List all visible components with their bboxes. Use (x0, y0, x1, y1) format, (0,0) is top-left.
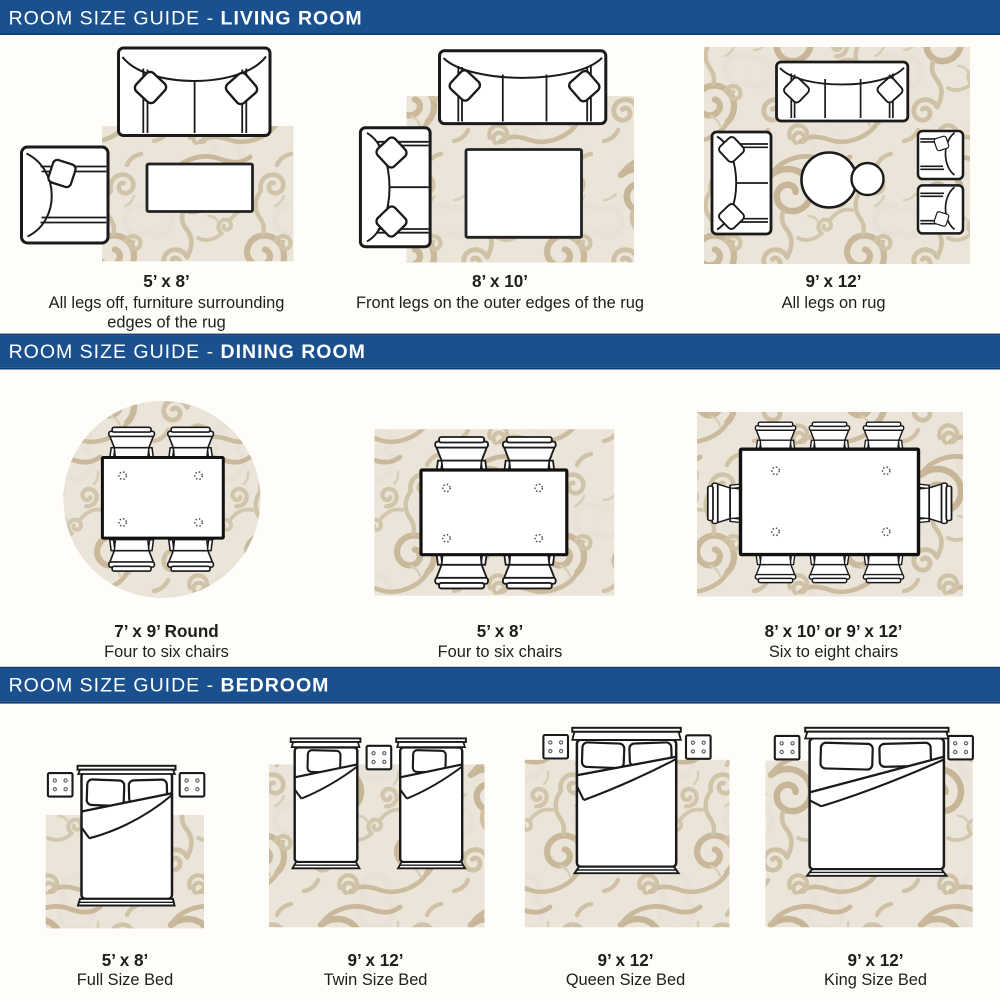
svg-text:7’ x 9’ Round: 7’ x 9’ Round (114, 622, 219, 641)
svg-text:Four to six chairs: Four to six chairs (438, 643, 563, 661)
svg-text:8’ x 10’ or 9’ x 12’: 8’ x 10’ or 9’ x 12’ (765, 622, 903, 641)
svg-text:ROOM SIZE GUIDE - LIVING ROOM: ROOM SIZE GUIDE - LIVING ROOM (9, 8, 363, 30)
svg-text:5’ x 8’: 5’ x 8’ (102, 951, 149, 970)
svg-text:Queen Size Bed: Queen Size Bed (566, 971, 685, 989)
svg-text:ROOM SIZE GUIDE - DINING ROOM: ROOM SIZE GUIDE - DINING ROOM (9, 341, 366, 363)
svg-text:King Size Bed: King Size Bed (824, 971, 927, 989)
svg-text:Six to eight chairs: Six to eight chairs (769, 643, 898, 661)
svg-text:9’ x 12’: 9’ x 12’ (347, 951, 403, 970)
svg-text:All legs off, furniture surrou: All legs off, furniture surrounding (49, 294, 285, 312)
svg-text:Twin Size Bed: Twin Size Bed (324, 971, 428, 989)
svg-text:8’ x 10’: 8’ x 10’ (472, 272, 528, 291)
svg-text:Full Size Bed: Full Size Bed (77, 971, 174, 989)
svg-text:edges of the rug: edges of the rug (107, 314, 225, 332)
svg-text:ROOM SIZE GUIDE - BEDROOM: ROOM SIZE GUIDE - BEDROOM (9, 675, 330, 697)
svg-text:9’ x 12’: 9’ x 12’ (597, 951, 653, 970)
svg-text:Front legs on the outer edges: Front legs on the outer edges of the rug (356, 294, 644, 312)
svg-text:9’ x 12’: 9’ x 12’ (805, 272, 861, 291)
svg-text:Four to six chairs: Four to six chairs (104, 643, 229, 661)
svg-text:All legs on rug: All legs on rug (782, 294, 886, 312)
svg-text:5’ x 8’: 5’ x 8’ (143, 272, 190, 291)
svg-text:9’ x 12’: 9’ x 12’ (847, 951, 903, 970)
svg-text:5’ x 8’: 5’ x 8’ (477, 622, 524, 641)
